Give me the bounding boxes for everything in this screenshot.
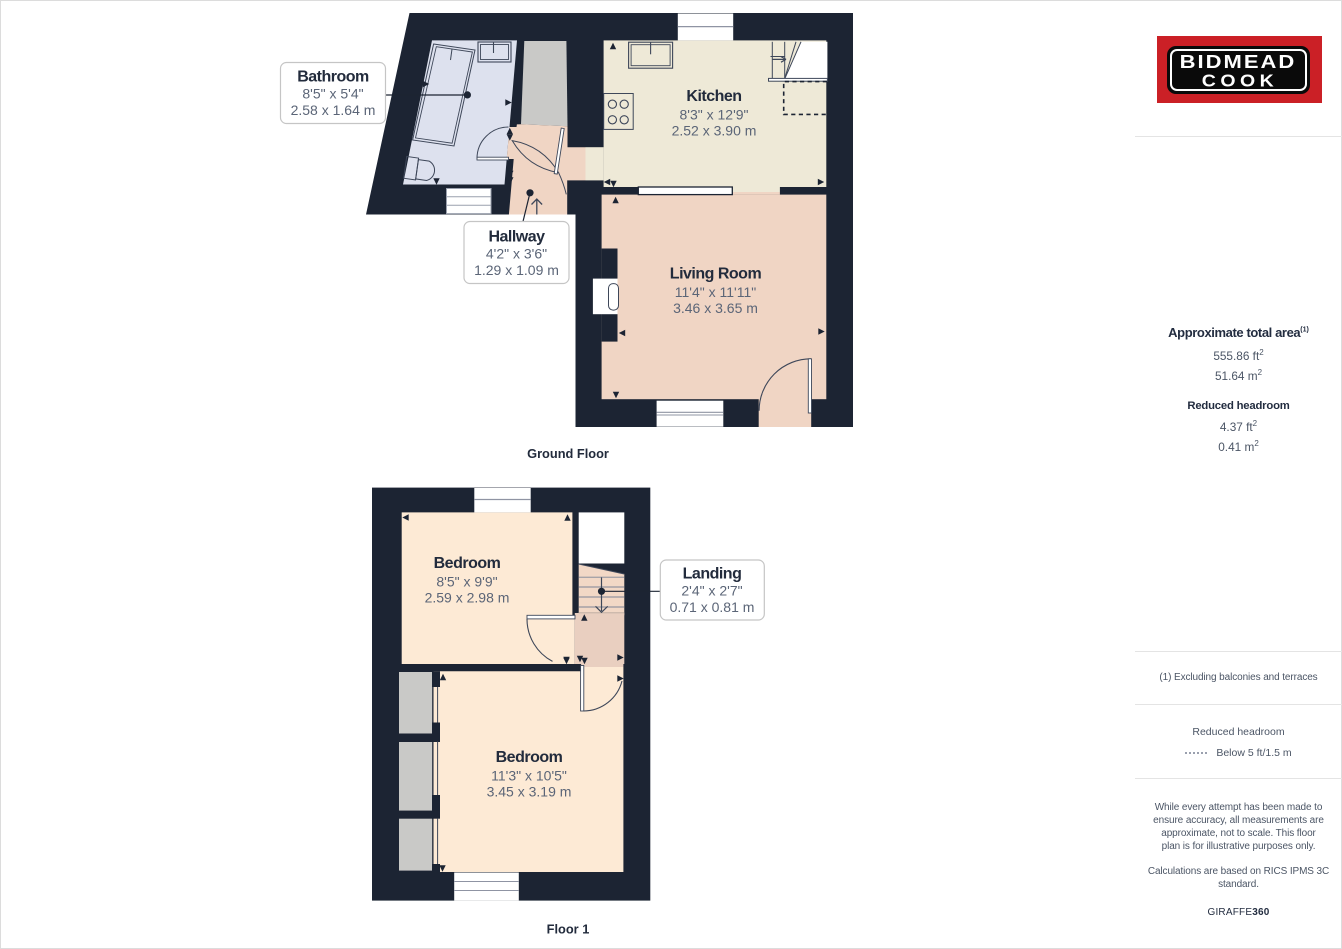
svg-text:0.71 x 0.81 m: 0.71 x 0.81 m — [670, 599, 755, 615]
svg-text:2.58 x 1.64 m: 2.58 x 1.64 m — [291, 102, 376, 118]
svg-text:Hallway: Hallway — [488, 229, 545, 246]
svg-text:11'3" x 10'5": 11'3" x 10'5" — [491, 768, 567, 784]
svg-text:Landing: Landing — [683, 566, 742, 583]
svg-text:Living Room: Living Room — [670, 266, 762, 283]
svg-text:Floor 1: Floor 1 — [547, 922, 590, 937]
svg-text:Bedroom: Bedroom — [496, 749, 563, 766]
svg-text:2.59 x 2.98 m: 2.59 x 2.98 m — [425, 590, 510, 606]
svg-text:Bedroom: Bedroom — [434, 555, 501, 572]
svg-text:Ground Floor: Ground Floor — [527, 446, 609, 461]
svg-text:1.29 x 1.09 m: 1.29 x 1.09 m — [474, 262, 559, 278]
svg-text:8'3" x 12'9": 8'3" x 12'9" — [680, 107, 749, 123]
svg-text:3.46 x 3.65 m: 3.46 x 3.65 m — [673, 300, 758, 316]
svg-text:2.52 x 3.90 m: 2.52 x 3.90 m — [672, 123, 757, 139]
svg-text:Bathroom: Bathroom — [297, 69, 369, 86]
svg-text:Kitchen: Kitchen — [686, 88, 741, 105]
svg-text:8'5" x 5'4": 8'5" x 5'4" — [302, 86, 363, 102]
svg-text:3.45 x 3.19 m: 3.45 x 3.19 m — [487, 784, 572, 800]
svg-text:4'2" x 3'6": 4'2" x 3'6" — [486, 246, 547, 262]
svg-text:2'4" x 2'7": 2'4" x 2'7" — [681, 583, 742, 599]
svg-text:11'4" x 11'11": 11'4" x 11'11" — [675, 284, 756, 300]
svg-text:8'5" x 9'9": 8'5" x 9'9" — [436, 574, 497, 590]
